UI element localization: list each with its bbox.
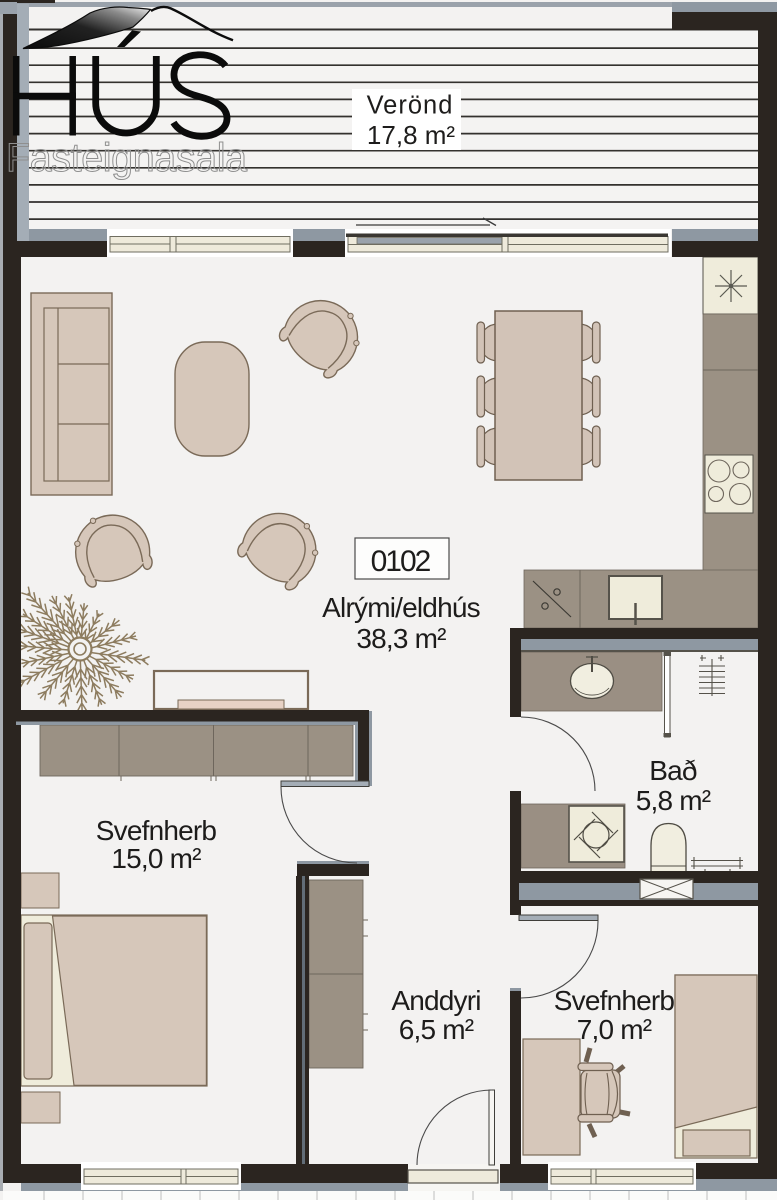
svg-text:Svefnherb: Svefnherb [96,815,217,846]
svg-text:0102: 0102 [371,545,431,578]
svg-text:Bað: Bað [649,755,697,786]
svg-text:Fasteignasala: Fasteignasala [6,136,247,180]
svg-text:Anddyri: Anddyri [391,985,480,1016]
svg-text:38,3 m²: 38,3 m² [356,623,446,654]
svg-text:5,8 m²: 5,8 m² [636,785,711,816]
svg-text:17,8 m²: 17,8 m² [367,120,455,150]
svg-text:7,0 m²: 7,0 m² [577,1014,652,1045]
svg-text:6,5 m²: 6,5 m² [399,1014,474,1045]
svg-text:Svefnherb: Svefnherb [554,985,675,1016]
svg-text:15,0 m²: 15,0 m² [111,843,201,874]
svg-text:Verönd: Verönd [367,92,454,120]
svg-text:Alrými/eldhús: Alrými/eldhús [322,592,480,623]
